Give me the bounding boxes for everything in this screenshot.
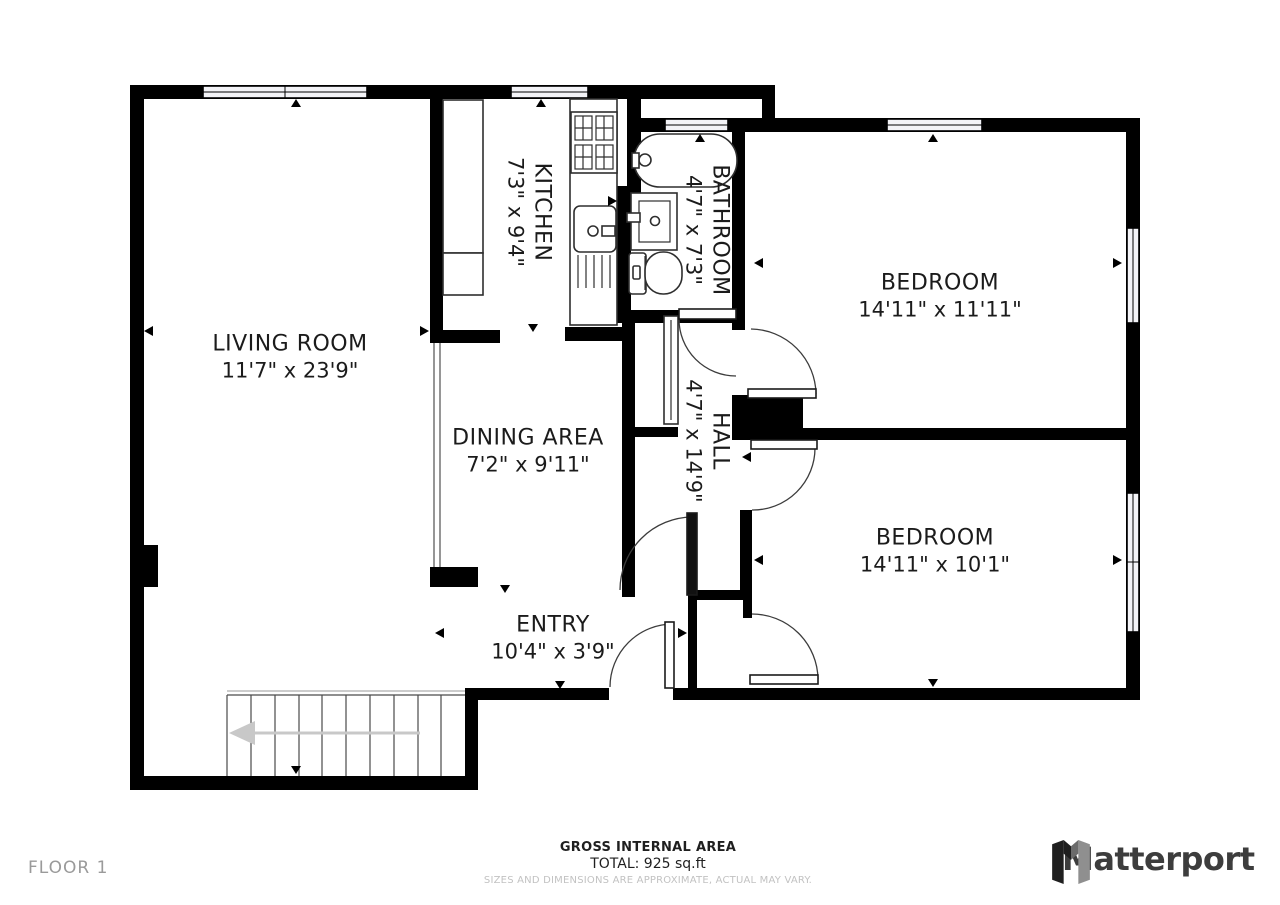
toilet-icon (629, 252, 682, 294)
bathroom-sink-icon (627, 193, 677, 250)
doors (609, 309, 818, 700)
room-dimensions: 7'3" x 9'4" (503, 157, 529, 267)
matterport-logo-icon (1052, 840, 1090, 884)
bedroom-top-door (748, 329, 816, 398)
room-name: KITCHEN (529, 157, 556, 267)
stove-icon (571, 112, 617, 173)
room-name: ENTRY (491, 612, 614, 639)
dining-divider (434, 343, 440, 567)
window-icon (665, 119, 728, 131)
room-label-living-room: LIVING ROOM 11'7" x 23'9" (212, 331, 367, 384)
room-name: DINING AREA (452, 425, 604, 452)
area-summary: GROSS INTERNAL AREA TOTAL: 925 sq.ft SIZ… (448, 840, 848, 886)
room-label-entry: ENTRY 10'4" x 3'9" (491, 612, 614, 665)
room-name: BEDROOM (858, 270, 1022, 297)
bedroom-bottom-lower-door (750, 614, 818, 684)
room-dimensions: 4'7" x 7'3" (681, 164, 707, 295)
floor-plan: LIVING ROOM 11'7" x 23'9" KITCHEN 7'3" x… (0, 0, 1280, 905)
room-dimensions: 10'4" x 3'9" (491, 639, 614, 665)
sliding-door-icon (664, 316, 678, 424)
window-icon (887, 119, 982, 131)
room-label-bedroom-bottom: BEDROOM 14'11" x 10'1" (860, 525, 1010, 578)
room-dimensions: 14'11" x 10'1" (860, 552, 1010, 578)
bathroom-door (679, 309, 736, 376)
floor-plan-drawing (0, 0, 1280, 905)
room-name: LIVING ROOM (212, 331, 367, 358)
floor-label: FLOOR 1 (28, 858, 108, 878)
entry-door (609, 622, 674, 700)
window-icon (511, 86, 588, 98)
room-dimensions: 11'7" x 23'9" (212, 358, 367, 384)
window-icon (1127, 493, 1139, 632)
room-label-bathroom: BATHROOM 4'7" x 7'3" (681, 164, 734, 295)
room-label-dining-area: DINING AREA 7'2" x 9'11" (452, 425, 604, 478)
kitchen-sink-icon (574, 206, 616, 252)
room-name: BATHROOM (707, 164, 734, 295)
matterport-logo: Matterport (1052, 840, 1254, 878)
room-dimensions: 14'11" x 11'11" (858, 297, 1022, 323)
room-label-kitchen: KITCHEN 7'3" x 9'4" (503, 157, 556, 267)
walls (130, 85, 1140, 790)
bedroom-bottom-upper-door (751, 440, 817, 510)
window-icon (1127, 228, 1139, 323)
room-name: BEDROOM (860, 525, 1010, 552)
room-label-bedroom-top: BEDROOM 14'11" x 11'11" (858, 270, 1022, 323)
room-name: HALL (707, 379, 734, 502)
window-icon (203, 86, 367, 98)
room-dimensions: 4'7" x 14'9" (681, 379, 707, 502)
room-dimensions: 7'2" x 9'11" (452, 452, 604, 478)
room-label-hall: HALL 4'7" x 14'9" (681, 379, 734, 502)
stairs-direction-arrow (229, 721, 420, 745)
matterport-logo-text: Matterport (1062, 840, 1254, 878)
gross-internal-area-title: GROSS INTERNAL AREA (448, 840, 848, 855)
staircase (227, 691, 465, 776)
disclaimer-text: SIZES AND DIMENSIONS ARE APPROXIMATE, AC… (448, 875, 848, 886)
total-area-value: TOTAL: 925 sq.ft (448, 856, 848, 872)
